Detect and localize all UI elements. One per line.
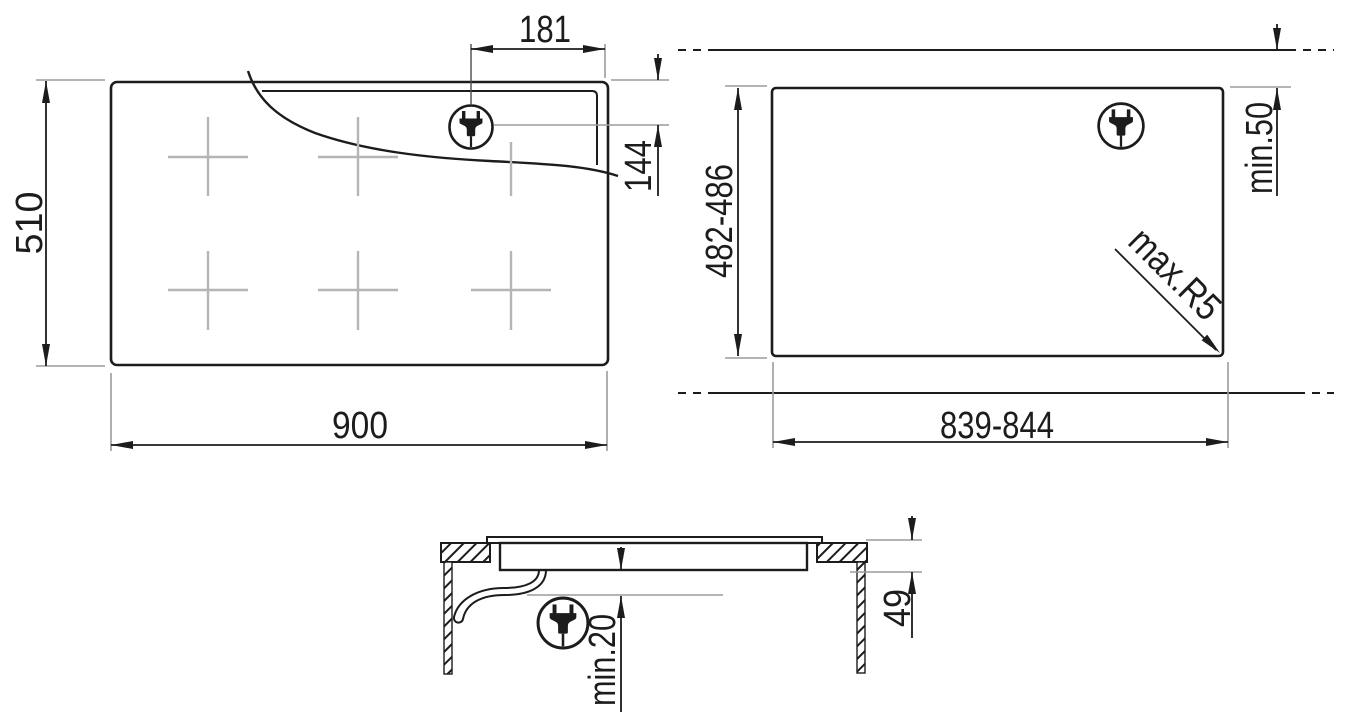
dim-label-plug-x: 181 [519,9,571,51]
arrowhead [1273,28,1281,50]
diagram-canvas: 510 900 181 144 [0,0,1345,716]
side-section-view: 49 min.20 [441,516,922,712]
power-plug-icon [1099,104,1144,149]
arrowhead [1206,438,1228,446]
dim-label-rear-clearance: min.50 [1239,102,1281,194]
cutout-outline [772,88,1223,356]
arrowhead [583,45,605,53]
worktop-section-right [817,543,867,562]
dim-label-cutout-depth: 482-486 [699,164,741,278]
dim-label-depth: 510 [9,192,51,255]
installation-diagram: 510 900 181 144 [0,0,1345,716]
worktop-cutout-view: 482-486 839-844 min.50 max.R5 [678,24,1334,448]
dim-cutout-depth: 482-486 [699,86,767,358]
power-plug-icon [538,598,588,648]
cabinet-panel-right [857,562,865,673]
arrowhead [585,441,607,449]
arrowhead [734,88,742,110]
arrowhead [42,344,50,366]
dim-cutout-width: 839-844 [773,362,1228,448]
dim-overall-width: 900 [111,371,607,451]
arrowhead [734,334,742,356]
dim-label-hob-height: 49 [877,589,919,627]
hob-body-profile [500,543,807,570]
dim-overall-depth: 510 [9,80,105,366]
cabinet-panel-left [444,562,452,674]
arrowhead [908,518,916,540]
power-cable [454,570,546,623]
dim-label-cutout-width: 839-844 [940,405,1054,447]
arrowhead [773,438,795,446]
arrowhead [471,45,493,53]
dim-label-plug-y: 144 [618,140,660,192]
arrowhead [654,58,662,80]
power-plug-icon [450,106,493,149]
worktop-section-left [441,543,490,562]
arrowhead [42,81,50,103]
hob-top-view: 510 900 181 144 [9,9,669,451]
arrowhead [111,441,133,449]
dim-label-clearance-below: min.20 [582,614,624,706]
dim-label-width: 900 [332,405,388,447]
